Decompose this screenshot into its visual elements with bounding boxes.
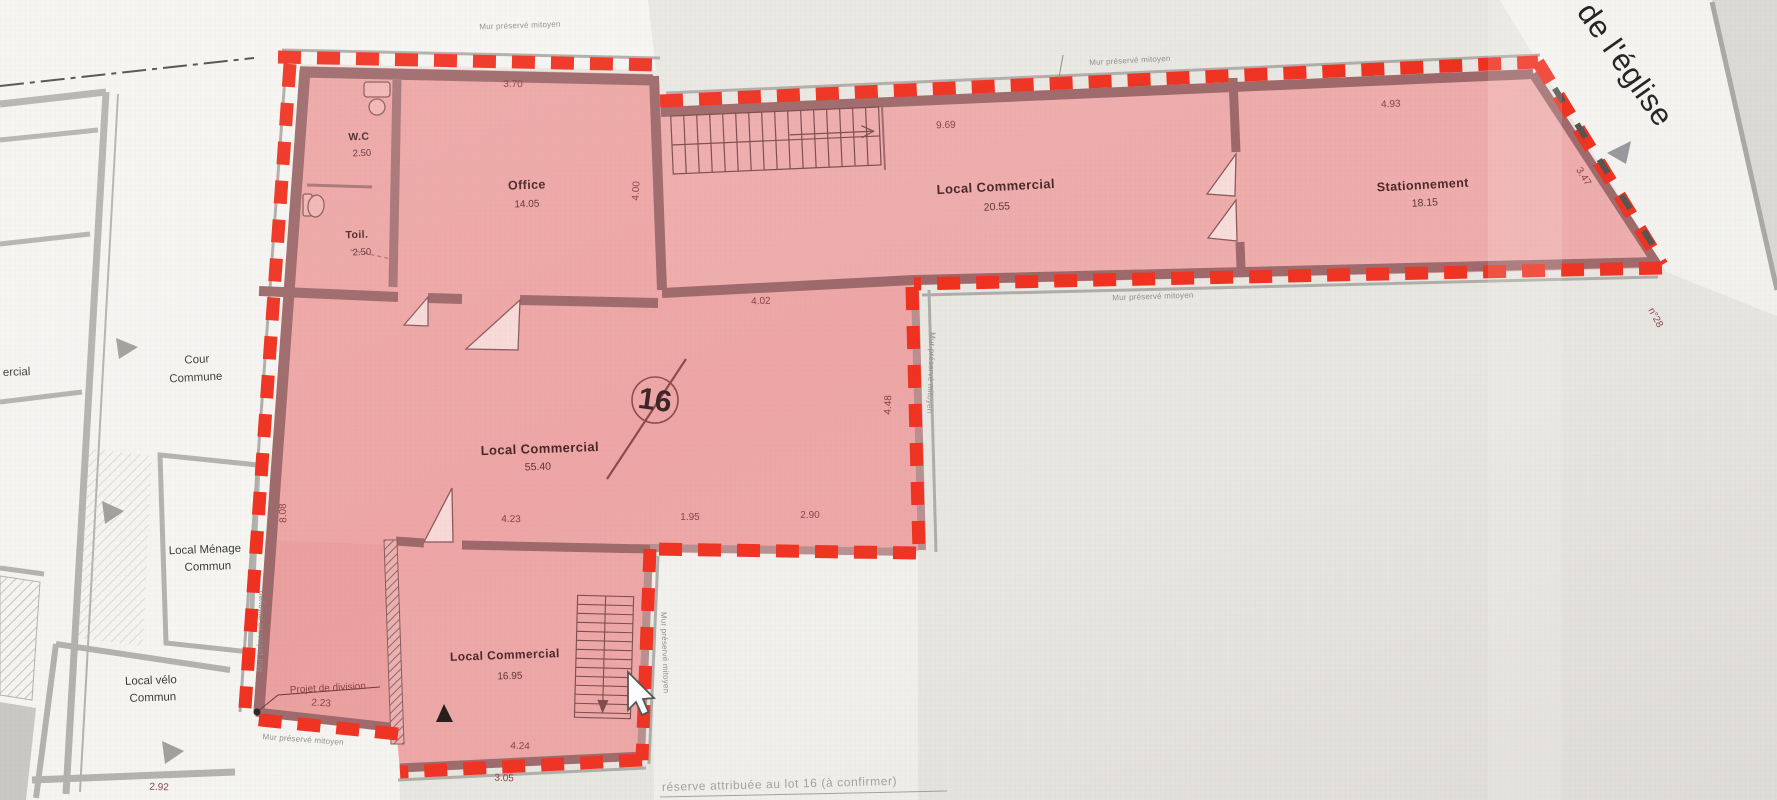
screenshot-root: 16 W.C 2.50 Toil. 2.50 Office 14.05 Loca… xyxy=(0,0,1777,800)
screen-reflection-band xyxy=(1488,0,1562,800)
floor-plan-photo: 16 W.C 2.50 Toil. 2.50 Office 14.05 Loca… xyxy=(0,0,1777,800)
